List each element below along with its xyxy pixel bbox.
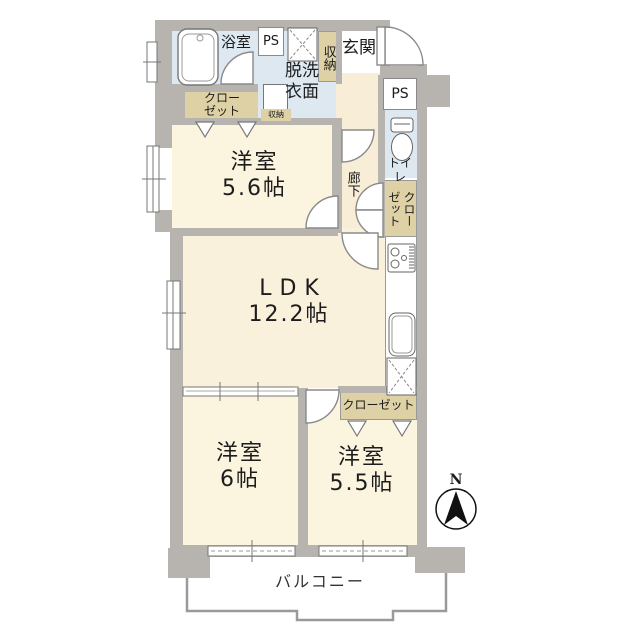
bath-label: 浴室 — [216, 33, 256, 51]
entry-storage-label: 収納 — [320, 34, 336, 82]
window-ldk — [162, 281, 186, 349]
washer-space-icon — [288, 28, 317, 61]
door-arc-bath — [221, 52, 253, 84]
small-storage-label: 収納 — [261, 110, 291, 120]
bedroom-sw-label: 洋室 6帖 — [180, 441, 300, 494]
bifold-door-se-2 — [393, 421, 411, 436]
entrance-label: 玄関 — [338, 38, 380, 58]
ps-top-label: PS — [258, 27, 284, 56]
compass-north-label: N — [445, 472, 467, 489]
closet-nw-label: クロー ゼット — [188, 92, 256, 118]
closet-east-label: クローゼット — [386, 186, 416, 232]
floor-plan: 浴室 PS 脱洗 衣面 収納 玄関 クロー ゼット 収納 PS トイレ 廊下 ク… — [0, 0, 640, 640]
bifold-door-se-1 — [348, 421, 366, 436]
window-room-se — [319, 540, 407, 562]
bedroom-se-label: 洋室 5.5帖 — [302, 445, 422, 498]
balcony-label: バルコニー — [240, 572, 400, 591]
closet-se-label: クローゼット — [340, 398, 417, 412]
bathtub-icon — [178, 29, 218, 85]
refrigerator-space-icon — [387, 358, 416, 395]
laundry-label: 脱洗 衣面 — [281, 61, 323, 103]
sink-icon — [389, 313, 415, 356]
toilet-label: トイレ — [383, 156, 417, 185]
sliding-door-ldk-sw — [183, 382, 298, 401]
ldk-label: LDK 12.2帖 — [208, 276, 370, 329]
door-arc-room-se — [306, 390, 339, 423]
bedroom-nw-label: 洋室 5.6帖 — [192, 150, 317, 203]
door-arc-entrance — [377, 27, 423, 65]
door-arc-closet-east-top — [356, 183, 383, 210]
compass-icon — [436, 489, 476, 529]
bifold-door-nw-2 — [238, 122, 256, 137]
window-bath — [143, 42, 161, 82]
toilet-icon — [391, 118, 413, 161]
window-room-nw — [142, 146, 172, 212]
ps-right-label: PS — [383, 78, 417, 110]
door-arc-ldk — [342, 233, 378, 269]
corridor-label: 廊下 — [344, 162, 360, 206]
bifold-door-nw-1 — [196, 122, 214, 137]
window-room-sw — [208, 540, 295, 562]
door-arc-toilet — [342, 130, 374, 162]
stove-icon — [388, 244, 415, 272]
